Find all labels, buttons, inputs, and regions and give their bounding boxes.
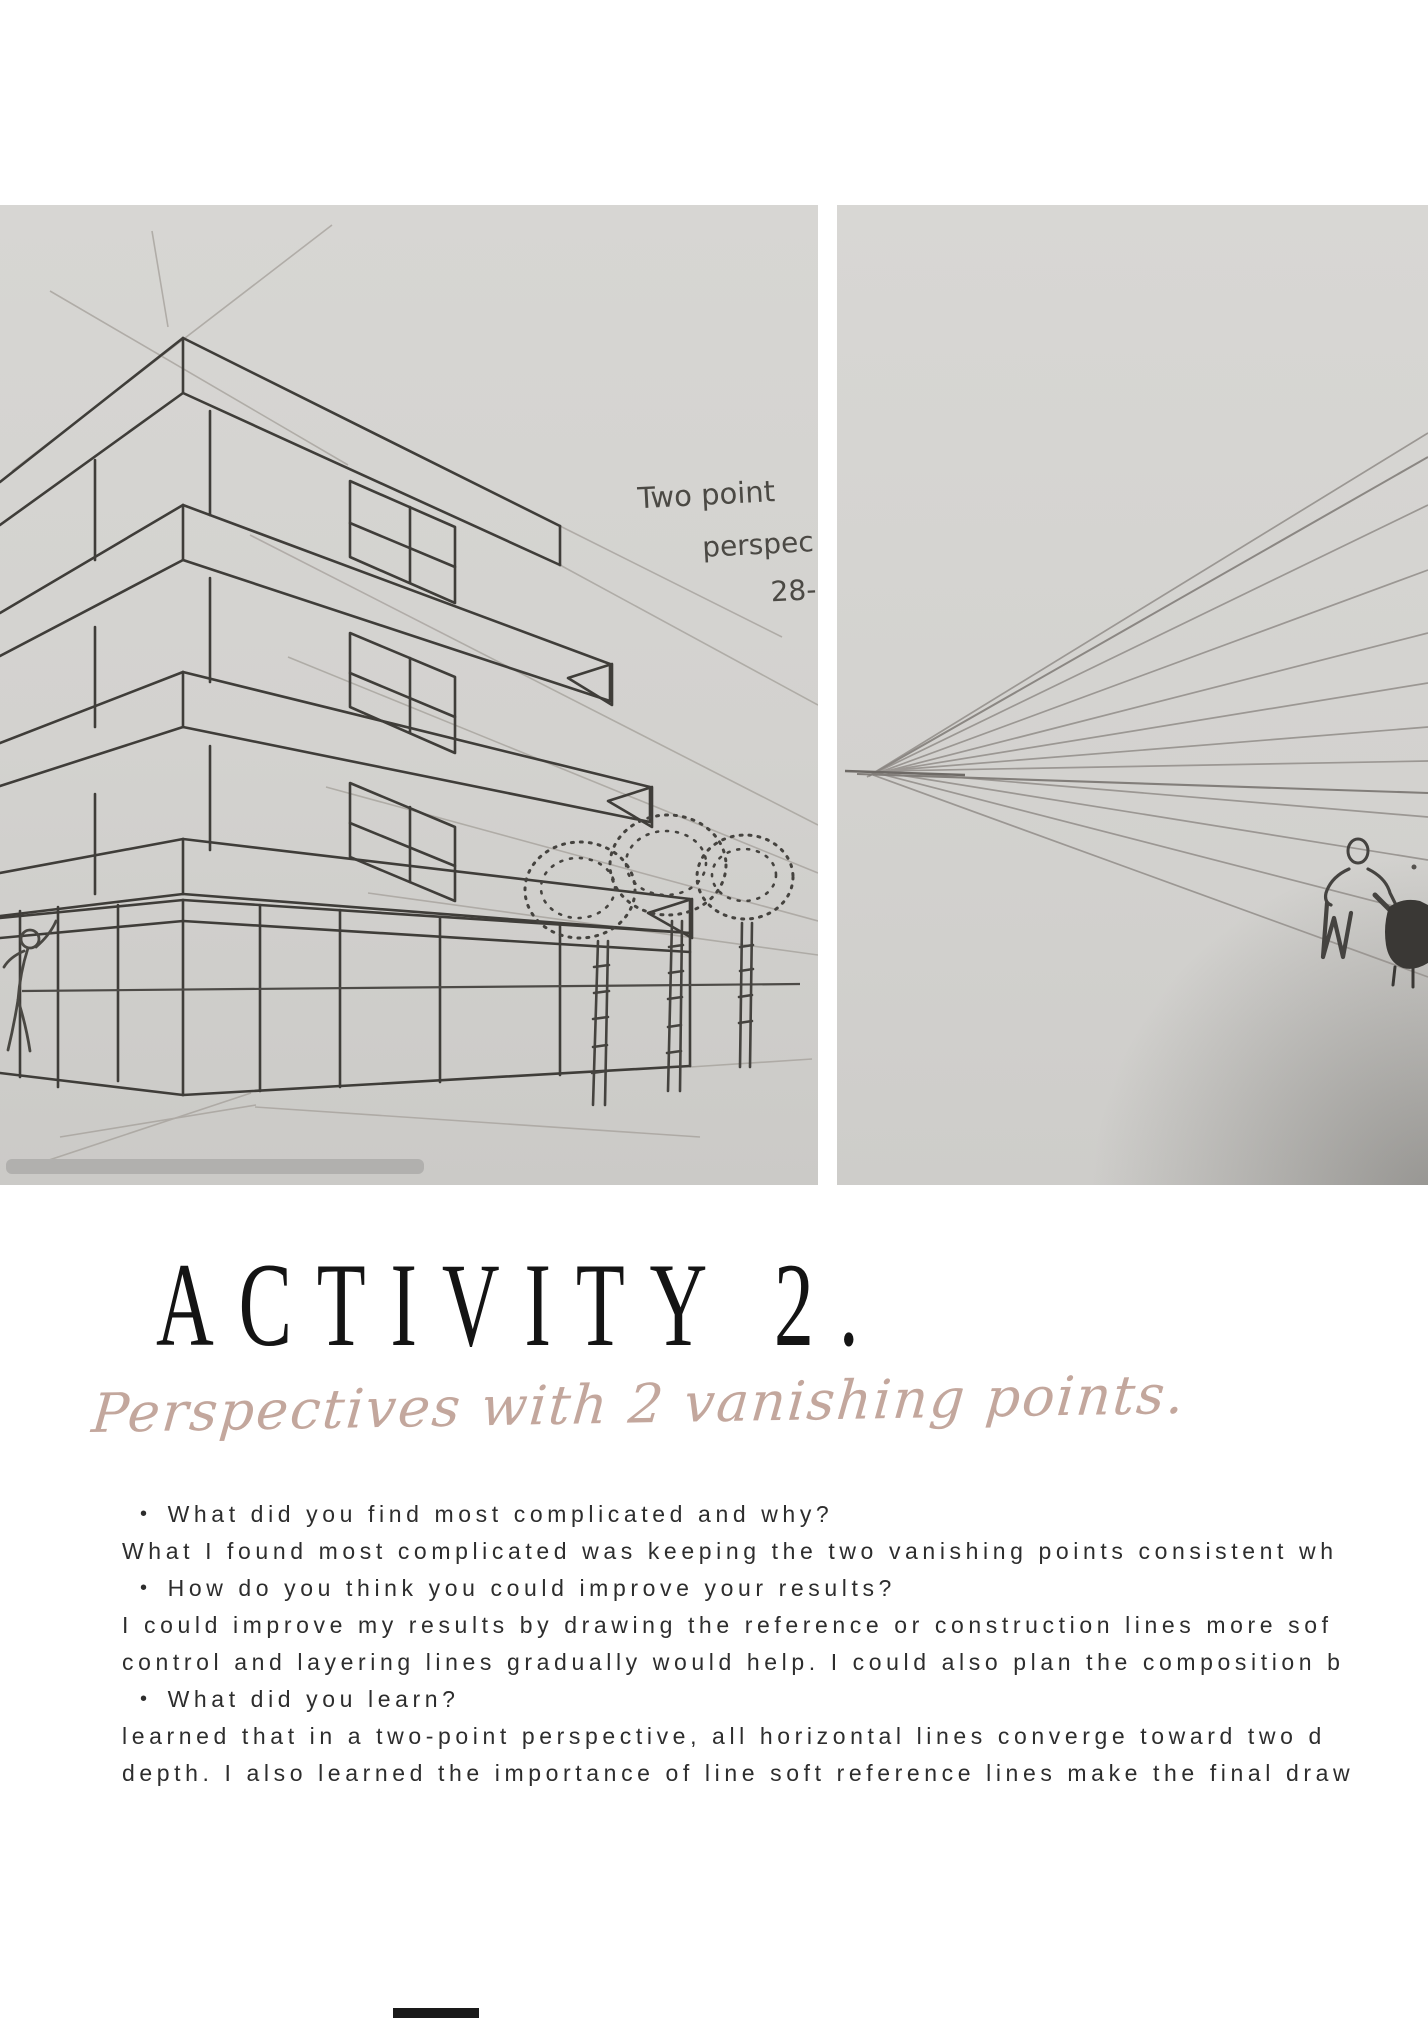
qa-text: learned that in a two-point perspective,…	[122, 1723, 1326, 1750]
qa-list: • What did you find most complicated and…	[122, 1496, 1428, 1792]
qa-line-answer-2b: control and layering lines gradually wou…	[122, 1644, 1428, 1681]
building-lines	[0, 338, 692, 1095]
vanishing-lines	[867, 433, 1428, 977]
horizon-line	[22, 984, 800, 991]
qa-text: What I found most complicated was keepin…	[122, 1538, 1338, 1565]
bullet-icon: •	[140, 1503, 152, 1526]
handwritten-annotation-line3: 28-	[770, 573, 817, 608]
qa-text: depth. I also learned the importance of …	[122, 1760, 1354, 1787]
qa-line-question-3: • What did you learn?	[122, 1681, 1428, 1718]
qa-text: What did you learn?	[168, 1686, 460, 1713]
activity-title: ACTIVITY 2.	[156, 1246, 884, 1366]
left-drawing-photo: Two point perspec 28-	[0, 205, 818, 1185]
handwritten-annotation-line1: Two point	[636, 474, 776, 515]
page-bottom-marker	[393, 2008, 479, 2018]
building-perspective-drawing: Two point perspec 28-	[0, 205, 818, 1185]
handwritten-annotation-line2: perspec	[701, 525, 814, 564]
qa-line-question-2: • How do you think you could improve you…	[122, 1570, 1428, 1607]
vanishing-point-drawing	[837, 205, 1428, 1185]
bullet-icon: •	[140, 1577, 152, 1600]
construction-lines	[12, 225, 818, 1167]
qa-text: control and layering lines gradually wou…	[122, 1649, 1345, 1676]
qa-line-answer-3a: learned that in a two-point perspective,…	[122, 1718, 1428, 1755]
pedestrian-figure	[4, 921, 56, 1051]
photo-gallery: Two point perspec 28-	[0, 205, 1428, 1185]
qa-line-answer-1: What I found most complicated was keepin…	[122, 1533, 1428, 1570]
activity-subtitle-script: Perspectives with 2 vanishing points.	[89, 1363, 1188, 1447]
qa-line-answer-3b: depth. I also learned the importance of …	[122, 1755, 1428, 1792]
bullet-icon: •	[140, 1688, 152, 1711]
qa-text: How do you think you could improve your …	[168, 1575, 896, 1602]
portfolio-page: Two point perspec 28-	[0, 0, 1428, 2018]
trees	[525, 815, 793, 1105]
right-drawing-photo	[837, 205, 1428, 1185]
qa-text: What did you find most complicated and w…	[168, 1501, 834, 1528]
qa-line-answer-2a: I could improve my results by drawing th…	[122, 1607, 1428, 1644]
video-progress-bar[interactable]	[6, 1159, 424, 1174]
qa-text: I could improve my results by drawing th…	[122, 1612, 1333, 1639]
qa-line-question-1: • What did you find most complicated and…	[122, 1496, 1428, 1533]
